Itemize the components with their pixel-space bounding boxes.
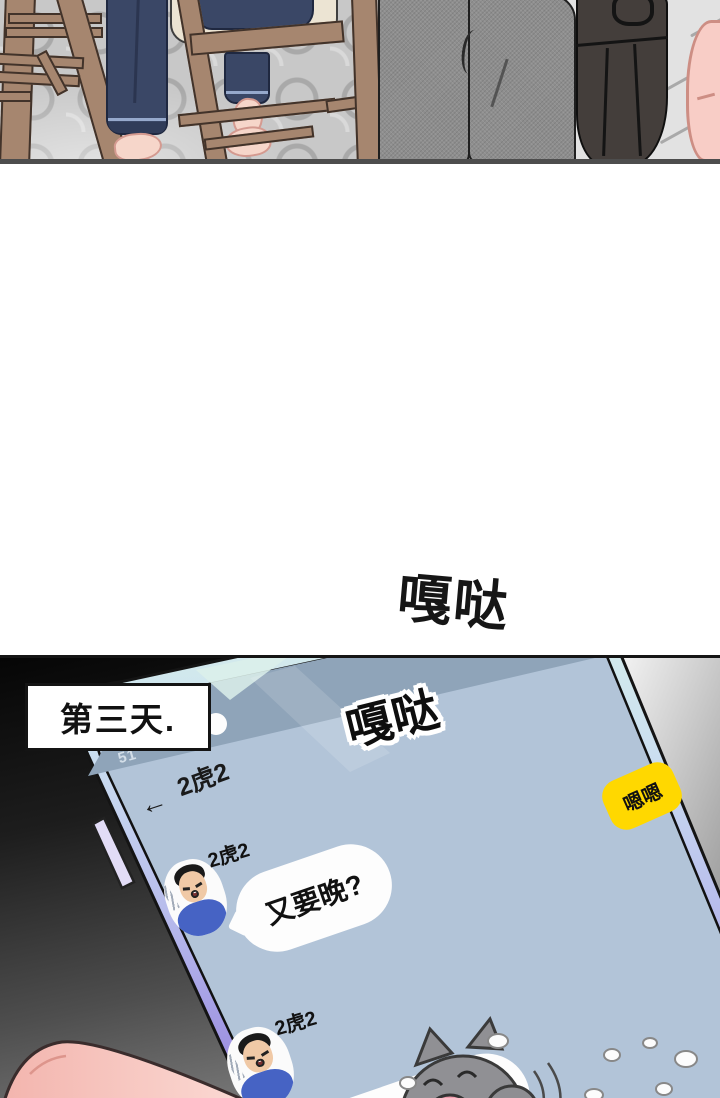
panel-phone: 第三天. 51 ← 2虎2 嘎哒 嗯嗯 2虎2 又要晚? bbox=[0, 655, 720, 1098]
pajama-leg bbox=[106, 0, 168, 135]
webtoon-page: 嘎哒 bbox=[0, 0, 720, 1098]
slacks-right-leg bbox=[468, 0, 576, 164]
bag-strap bbox=[612, 0, 654, 26]
cat-sticker bbox=[388, 1013, 720, 1098]
thumb bbox=[0, 1036, 262, 1098]
sfx-gada-outside: 嘎哒 bbox=[395, 553, 513, 641]
caption-text: 第三天. bbox=[60, 693, 176, 741]
slacks-left-leg bbox=[378, 0, 470, 164]
message-received-text: 又要晚? bbox=[260, 863, 369, 934]
panel-kitchen bbox=[0, 0, 720, 164]
message-sent-text: 嗯嗯 bbox=[618, 775, 666, 818]
chair-left-rung bbox=[0, 91, 32, 102]
pajama-leg-2 bbox=[224, 52, 270, 104]
caption-box: 第三天. bbox=[25, 683, 211, 751]
